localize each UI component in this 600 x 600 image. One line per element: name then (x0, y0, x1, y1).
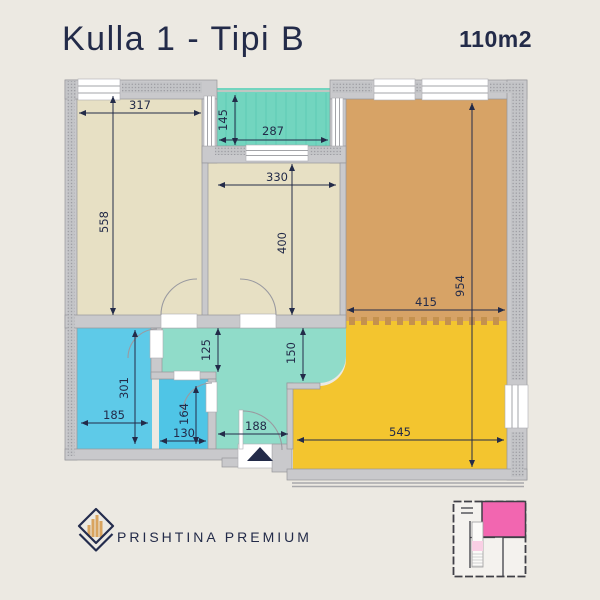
window (204, 96, 215, 146)
door-opening (161, 314, 197, 328)
dim-bedroom1-length: 558 (97, 211, 111, 233)
floorplan-page: Kulla 1 - Tipi B 110m2 (0, 0, 600, 600)
dim-hall-right: 150 (284, 342, 298, 364)
dim-bedroom2-width: 330 (266, 170, 288, 184)
window (505, 385, 528, 428)
window (332, 98, 343, 146)
dim-hall-left: 125 (199, 339, 213, 361)
window (78, 79, 120, 100)
locator-highlighted-unit (482, 502, 526, 538)
dim-balcony-width: 287 (262, 124, 284, 138)
dim-bedroom1-width: 317 (129, 98, 151, 112)
dim-kitchen-width: 545 (389, 425, 411, 439)
terrace-edge-lines (292, 483, 524, 487)
room-balcony (217, 88, 330, 147)
dim-bathroom-length: 301 (117, 377, 131, 399)
dim-wc-width: 130 (173, 426, 195, 440)
brand-logo-icon (73, 503, 119, 559)
dim-balcony-depth: 145 (216, 109, 230, 131)
locator-stair-landing (472, 541, 483, 551)
dim-bathroom-width: 185 (103, 408, 125, 422)
entrance-door-leaf (239, 410, 243, 449)
door-opening (240, 314, 276, 328)
dim-living-length: 954 (453, 275, 467, 297)
room-living (346, 99, 508, 321)
window (422, 79, 488, 100)
door-opening (206, 382, 217, 412)
dim-living-width: 415 (415, 295, 437, 309)
brand-name: PRISHTINA PREMIUM (117, 529, 312, 545)
dim-bedroom2-length: 400 (275, 232, 289, 254)
dim-entry-width: 188 (245, 419, 267, 433)
logo-building-bars (88, 515, 103, 537)
building-locator-map (451, 499, 533, 583)
room-bathroom (76, 328, 152, 449)
dim-wc-length: 164 (177, 403, 191, 425)
window (374, 79, 415, 100)
window (174, 371, 200, 380)
door-opening (150, 330, 163, 358)
balcony-door (246, 145, 308, 161)
room-bedroom-1 (77, 99, 202, 316)
